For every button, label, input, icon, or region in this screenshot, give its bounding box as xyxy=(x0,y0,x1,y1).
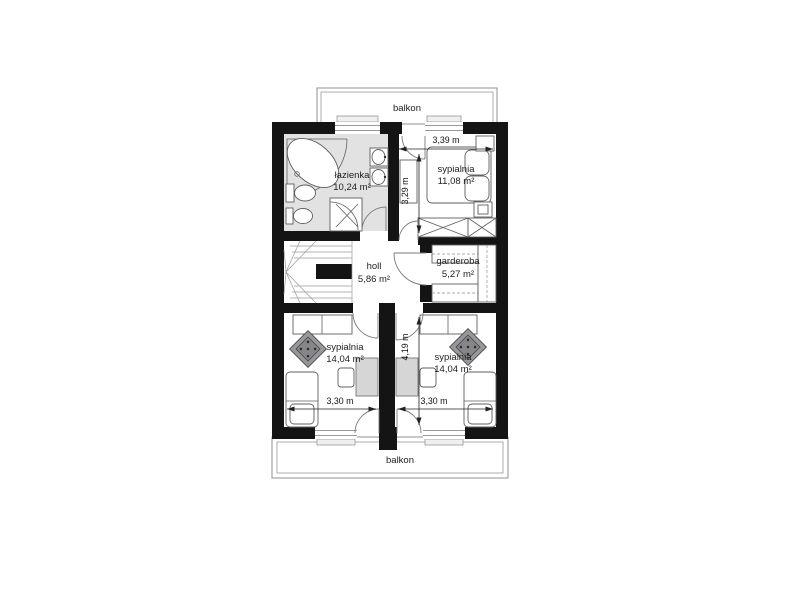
toilet xyxy=(286,184,316,202)
bedroom-left-furniture xyxy=(286,315,378,427)
room-name-holl: holl xyxy=(367,261,382,272)
wall-bath-bedroom xyxy=(388,134,399,241)
shower xyxy=(330,198,362,231)
pillow xyxy=(290,404,314,424)
room-name-sypialnia-top: sypialnia xyxy=(438,164,476,175)
room-area-sypialnia-top: 11,08 m² xyxy=(438,176,475,187)
stair-spine-wall xyxy=(316,264,352,279)
window-bedroom-top xyxy=(425,116,463,134)
room-name-sypialnia-right: sypialnia xyxy=(435,352,473,363)
room-area-holl: 5,86 m² xyxy=(358,274,390,285)
door-garderoba xyxy=(394,253,426,285)
room-area-sypialnia-left: 14,04 m² xyxy=(326,354,364,365)
door-balcony-top xyxy=(402,136,425,159)
window-bathroom xyxy=(335,116,380,134)
wall-hall-bedrooms-left xyxy=(284,303,353,313)
door-bedroom-left xyxy=(353,313,378,338)
sink xyxy=(370,168,388,186)
room-name-sypialnia-left: sypialnia xyxy=(327,342,365,353)
door-balcony-bottom-left xyxy=(355,409,379,433)
dim-bottom-left-width: 3,30 m xyxy=(327,396,354,406)
chair xyxy=(338,368,354,387)
armchair xyxy=(290,331,327,368)
sink xyxy=(370,148,388,166)
floor-plan-canvas: balkon balkon xyxy=(0,0,800,600)
dim-top-height: 3,29 m xyxy=(400,178,410,205)
room-area-garderoba: 5,27 m² xyxy=(442,269,474,280)
bidet xyxy=(286,208,313,224)
door-bedroom-top xyxy=(399,221,418,240)
room-area-sypialnia-right: 14,04 m² xyxy=(434,364,472,375)
wall-hall-bedrooms-right xyxy=(423,303,496,313)
window-bedroom-right xyxy=(423,427,465,445)
balcony-door-post xyxy=(379,427,397,450)
dim-top-width: 3,39 m xyxy=(433,135,460,145)
dim-bottom-right-width: 3,30 m xyxy=(421,396,448,406)
room-area-lazienka: 10,24 m² xyxy=(333,182,371,193)
window-bedroom-left xyxy=(315,427,357,445)
dresser xyxy=(293,315,352,334)
balcony-bottom-label: balkon xyxy=(386,455,414,466)
room-name-lazienka: łazienka xyxy=(335,170,371,181)
dim-bottom-height: 4,19 m xyxy=(400,334,410,361)
balcony-top-label: balkon xyxy=(393,103,421,114)
door-balcony-bottom-right xyxy=(397,409,421,433)
closet xyxy=(468,218,496,237)
pillow xyxy=(468,404,492,424)
wall-between-bedrooms xyxy=(379,303,395,427)
desk xyxy=(396,358,418,396)
wall-bath-bottom xyxy=(284,231,360,241)
room-name-garderoba: garderoba xyxy=(436,256,480,267)
closet xyxy=(418,218,468,237)
floor-plan-svg: balkon balkon xyxy=(0,0,800,600)
